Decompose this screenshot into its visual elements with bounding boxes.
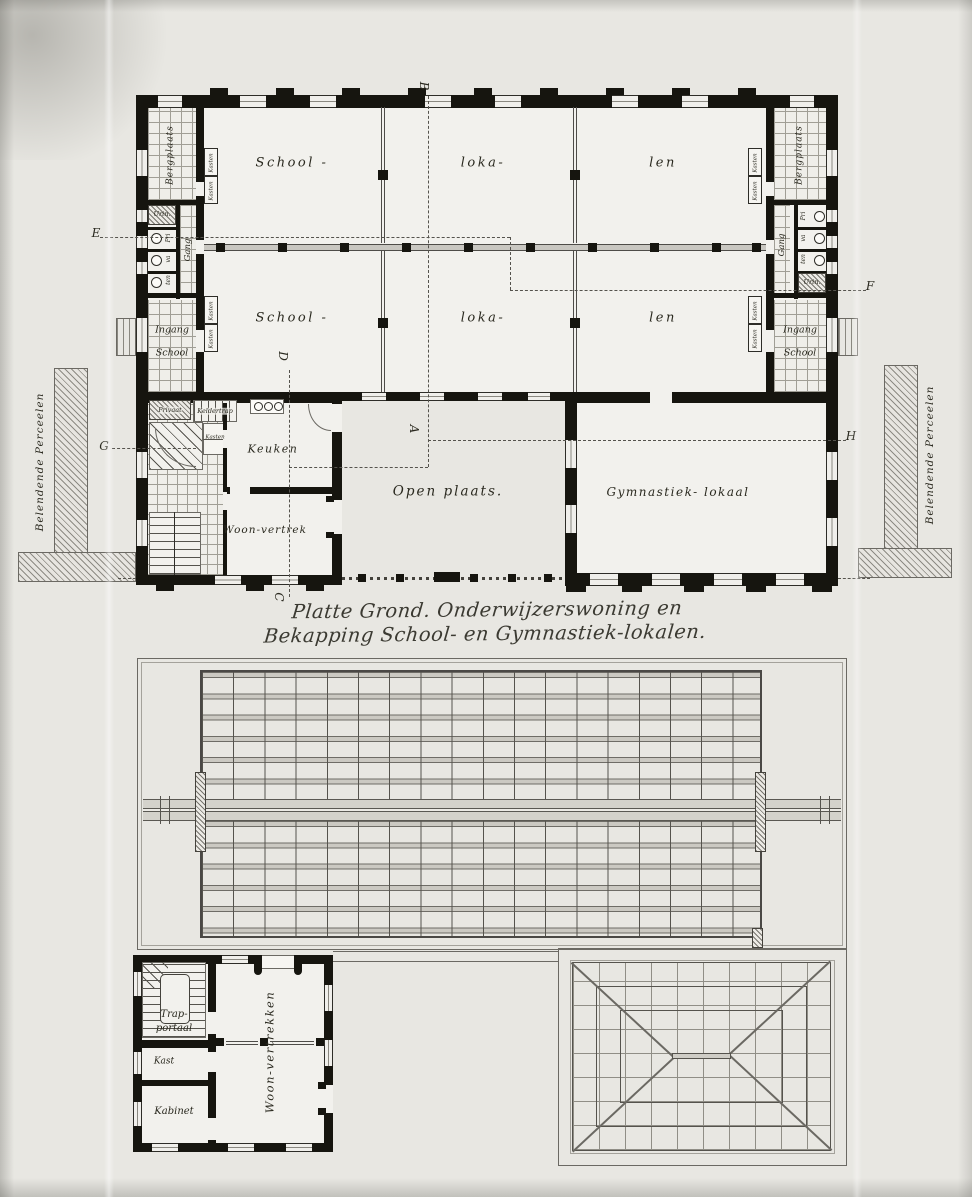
- courtyard-gate: [434, 572, 460, 582]
- toilet-bowl: [264, 402, 273, 411]
- paper-crease: [104, 0, 114, 1197]
- window-opening: [826, 210, 838, 222]
- wall-segment: [798, 227, 826, 230]
- classroom-label: School -: [256, 157, 329, 170]
- toilet-bowl: [254, 402, 263, 411]
- marker-G: G: [99, 440, 109, 452]
- window-opening: [776, 573, 804, 586]
- column-post: [316, 1038, 324, 1046]
- window-opening: [133, 1052, 142, 1074]
- entrance-door-right: [826, 318, 838, 352]
- parcel-label-right: Belendende Perceelen: [925, 386, 936, 525]
- hip-ridge: [672, 1053, 731, 1059]
- door-opening: [196, 330, 204, 352]
- column-post: [650, 243, 659, 252]
- paper-shading: [0, 0, 14, 1197]
- column-post: [378, 170, 388, 180]
- text-label: Kasten: [753, 153, 759, 172]
- door-opening: [208, 1118, 216, 1140]
- text-label: Kasten: [753, 301, 759, 320]
- marker-D: D: [277, 351, 289, 361]
- woonvertrek-label: Woon-vertrek: [223, 525, 307, 536]
- drawing-title-line2: Bekapping School- en Gymnastiek-lokalen.: [263, 622, 707, 646]
- classroom-label: loka-: [461, 312, 506, 325]
- buttress: [342, 88, 360, 95]
- window-opening: [362, 392, 386, 401]
- keuken-door: [332, 404, 342, 432]
- window-opening: [565, 440, 577, 468]
- column-post: [378, 318, 388, 328]
- bergplaats-label-left: Bergplaats: [167, 125, 176, 185]
- window-opening: [310, 95, 336, 108]
- woonvertrekken-label: Woon-vertrekken: [264, 991, 276, 1114]
- buttress: [746, 586, 766, 592]
- kabinet-label: Kabinet: [154, 1107, 193, 1117]
- column-post: [470, 574, 478, 582]
- cabinet: Kasten: [748, 176, 762, 204]
- buttress: [156, 585, 174, 591]
- buttress: [606, 88, 624, 95]
- gang-label-left: Gang: [184, 239, 193, 262]
- classroom-label: loka-: [461, 157, 506, 170]
- column-post: [508, 574, 516, 582]
- paper-shading: [958, 0, 972, 1197]
- plan-element: [270, 1041, 314, 1045]
- toilet-bowl: [274, 402, 283, 411]
- window-opening: [240, 95, 266, 108]
- text-label: School: [156, 348, 188, 358]
- cabinet: Kasten: [748, 324, 762, 352]
- marker-B: B: [418, 82, 430, 91]
- door-opening: [208, 1012, 216, 1034]
- keuken-label: Keuken: [248, 444, 299, 455]
- cabinet: Kasten: [204, 148, 218, 176]
- wall-segment: [326, 532, 334, 538]
- section-line: [118, 578, 136, 579]
- porch-left: [116, 318, 136, 356]
- column-post: [712, 243, 721, 252]
- window-opening: [682, 95, 708, 108]
- woonvertrek-door: [332, 500, 342, 534]
- column-post: [570, 318, 580, 328]
- section-line: [510, 237, 511, 290]
- window-opening: [222, 955, 248, 964]
- wall-segment: [148, 293, 196, 298]
- toilet-bowl: [814, 233, 825, 244]
- buttress: [246, 585, 264, 591]
- column-post: [526, 243, 535, 252]
- door-opening: [766, 240, 774, 254]
- column-post: [464, 243, 473, 252]
- column-post: [752, 243, 761, 252]
- buttress: [812, 586, 832, 592]
- roof-rafters-south: [200, 821, 762, 938]
- wall-segment: [148, 271, 176, 274]
- bergplaats-label-right: Bergplaats: [796, 125, 805, 185]
- text-label: Kasten: [753, 181, 759, 200]
- column-post: [216, 243, 225, 252]
- privaat-label: Privaat: [158, 407, 182, 414]
- window-opening: [324, 1040, 333, 1066]
- toilet-bowl: [151, 277, 162, 288]
- cabinet: Kasten: [748, 148, 762, 176]
- classroom-label: School -: [256, 312, 329, 325]
- window-opening: [826, 150, 838, 176]
- section-line: [428, 96, 429, 467]
- marker-H: H: [846, 430, 856, 442]
- roof-ridge: [143, 799, 841, 821]
- plan-element: [160, 796, 170, 824]
- toilet-bowl: [814, 255, 825, 266]
- kast-label: Kast: [154, 1058, 174, 1067]
- cabinet: Kasten: [748, 296, 762, 324]
- window-opening: [133, 1102, 142, 1126]
- main-stair: [149, 512, 201, 575]
- window-opening: [272, 575, 298, 585]
- window-opening: [495, 95, 521, 108]
- section-line: [289, 467, 428, 468]
- column-post: [402, 243, 411, 252]
- window-opening: [826, 518, 838, 546]
- window-opening: [158, 95, 182, 108]
- column-post: [278, 243, 287, 252]
- wall-segment: [565, 392, 577, 585]
- keldertrap-label: Keldertrap: [197, 408, 232, 415]
- entrance-door-left: [136, 318, 148, 352]
- window-opening: [790, 95, 814, 108]
- door-opening: [766, 330, 774, 352]
- buttress: [566, 586, 586, 592]
- gym-label: Gymnastiek- lokaal: [607, 486, 750, 498]
- parcel-wall-left: [54, 368, 88, 558]
- cabinet: Kasten: [204, 324, 218, 352]
- window-opening: [714, 573, 742, 586]
- buttress: [672, 88, 690, 95]
- buttress: [540, 88, 558, 95]
- porch-right: [838, 318, 858, 356]
- column-post: [340, 243, 349, 252]
- ingang-label-left: Ingang: [155, 325, 189, 335]
- column-post: [544, 574, 552, 582]
- window-opening: [136, 262, 148, 274]
- wall-segment: [133, 1080, 216, 1086]
- parcel-wall-right-bottom: [858, 548, 952, 578]
- wall-segment: [254, 955, 262, 975]
- wall-segment: [176, 205, 180, 299]
- column-post: [396, 574, 404, 582]
- plan-element: [820, 796, 830, 824]
- section-line: [428, 440, 846, 441]
- toilet-bowl: [814, 211, 825, 222]
- wall-segment: [318, 1108, 326, 1115]
- wall-segment: [326, 496, 334, 502]
- section-line: [838, 578, 870, 579]
- wall-segment: [318, 1082, 326, 1089]
- drawing-title-line1: Platte Grond. Onderwijzerswoning en: [291, 598, 683, 622]
- paper-shading: [0, 1178, 972, 1197]
- window-opening: [478, 392, 502, 401]
- wall-segment: [565, 392, 838, 403]
- marker-E: E: [92, 227, 101, 239]
- parapet-wall: [333, 951, 558, 962]
- buttress: [738, 88, 756, 95]
- text-label: Kasten: [209, 329, 215, 348]
- window-opening: [652, 573, 680, 586]
- cabinet: Kasten: [204, 296, 218, 324]
- architectural-drawing: Belendende Perceelen Belendende Perceele…: [0, 0, 972, 1197]
- door-opening: [208, 1052, 216, 1072]
- column-post: [588, 243, 597, 252]
- parcel-wall-right: [884, 365, 918, 555]
- text-label: Kasten: [209, 301, 215, 320]
- marker-A: A: [408, 425, 420, 434]
- window-opening: [228, 1143, 254, 1152]
- window-opening: [136, 210, 148, 222]
- text-label: Kasten: [753, 329, 759, 348]
- door-opening: [196, 182, 204, 196]
- window-opening: [136, 452, 148, 478]
- chimney: [755, 772, 766, 852]
- window-opening: [565, 505, 577, 533]
- text-label: Kasten: [209, 181, 215, 200]
- ingang-left: [148, 300, 196, 392]
- text-label: School: [784, 348, 816, 358]
- plan-element: [226, 1041, 258, 1045]
- door-opening: [196, 240, 204, 254]
- parcel-label-left: Belendende Perceelen: [35, 393, 46, 532]
- column-post: [216, 1038, 224, 1046]
- window-opening: [133, 972, 142, 996]
- classroom-label: len: [649, 312, 677, 325]
- buttress: [474, 88, 492, 95]
- window-opening: [826, 262, 838, 274]
- classroom-label: len: [649, 157, 677, 170]
- cabinet: Kasten: [204, 176, 218, 204]
- kasten-label: Kasten: [205, 435, 224, 441]
- buttress: [622, 586, 642, 592]
- marker-C: C: [273, 592, 285, 601]
- window-opening: [136, 520, 148, 546]
- wall-segment: [148, 227, 176, 230]
- wall-segment: [133, 1040, 216, 1048]
- chimney: [752, 928, 763, 948]
- window-opening: [324, 985, 333, 1011]
- text-label: ten: [801, 254, 807, 264]
- marker-F: F: [866, 280, 874, 292]
- toilet-bowl: [151, 233, 162, 244]
- urinoir-label-right: Urin.: [804, 279, 821, 286]
- section-line: [510, 290, 866, 291]
- urinoir-label-left: Urin.: [154, 211, 171, 218]
- wall-segment: [798, 249, 826, 252]
- door-opening: [230, 487, 250, 494]
- paper-crease: [852, 0, 862, 1197]
- buttress: [210, 88, 228, 95]
- buttress: [684, 586, 704, 592]
- gang-label-right: Gang: [778, 234, 787, 257]
- toilet-bowl: [151, 255, 162, 266]
- roof-rafters-north: [200, 670, 762, 800]
- corridor: [204, 244, 766, 251]
- window-opening: [215, 575, 241, 585]
- chimney: [195, 772, 206, 852]
- window-opening: [152, 1143, 178, 1152]
- section-line: [112, 448, 196, 449]
- text-label: va: [801, 235, 807, 242]
- trap-portaal-label: Trap-: [160, 1010, 187, 1020]
- text-label: portaal: [156, 1024, 192, 1034]
- window-opening: [826, 236, 838, 248]
- wall-segment: [774, 200, 826, 205]
- wall-segment: [774, 293, 826, 298]
- column-post: [570, 170, 580, 180]
- column-post: [358, 574, 366, 582]
- window-opening: [590, 573, 618, 586]
- section-line: [100, 237, 510, 238]
- section-line: [289, 370, 290, 597]
- text-label: Kasten: [209, 153, 215, 172]
- ingang-right: [774, 300, 826, 392]
- window-opening: [826, 452, 838, 480]
- door-opening: [766, 182, 774, 196]
- ingang-label-right: Ingang: [783, 325, 817, 335]
- window-opening: [420, 392, 444, 401]
- buttress: [276, 88, 294, 95]
- door-opening: [223, 492, 227, 510]
- paper-shading: [0, 0, 972, 12]
- text-label: va: [166, 256, 172, 263]
- courtyard-label: Open plaats.: [393, 485, 503, 499]
- window-opening: [286, 1143, 312, 1152]
- window-opening: [612, 95, 638, 108]
- window-opening: [528, 392, 550, 401]
- window-opening: [136, 150, 148, 176]
- wall-segment: [148, 249, 176, 252]
- gym-door: [650, 392, 672, 403]
- text-label: Pri: [801, 212, 807, 221]
- wall-segment: [294, 955, 302, 975]
- plan-element: [174, 512, 175, 575]
- buttress: [306, 585, 324, 591]
- text-label: ten: [166, 275, 172, 285]
- text-label: Pri: [166, 234, 172, 243]
